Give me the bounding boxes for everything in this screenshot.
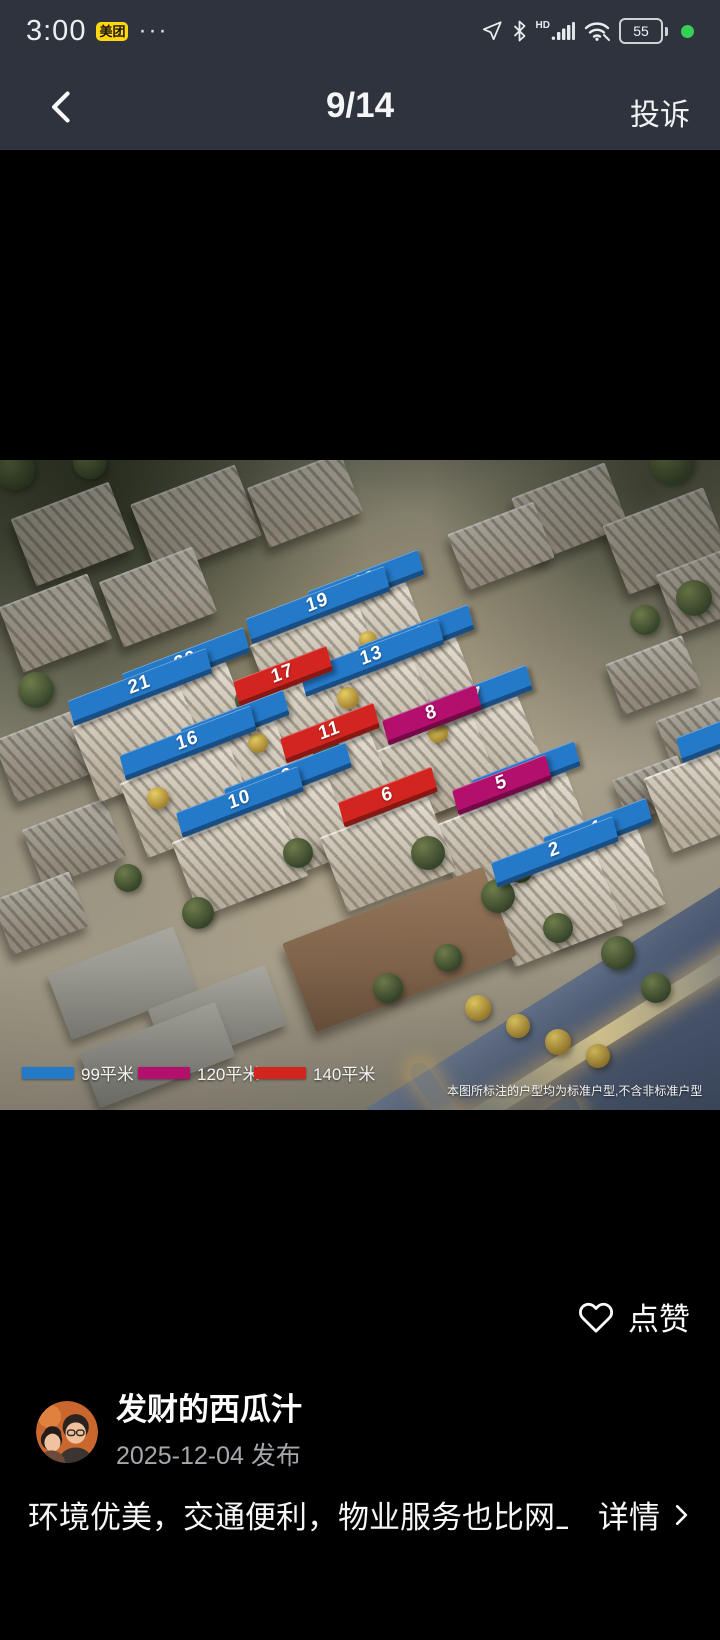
tower-decor	[11, 482, 135, 587]
legend-swatch-magenta	[138, 1067, 190, 1079]
tree-decor	[283, 838, 313, 868]
tree-decor	[650, 460, 694, 484]
tree-decor	[0, 460, 35, 490]
location-icon	[481, 20, 503, 42]
tree-decor	[18, 672, 54, 708]
post-image[interactable]: 181912132017217815111639561012 幼儿园 99平米1…	[0, 460, 720, 1110]
like-label: 点赞	[628, 1294, 690, 1339]
legend-label: 99平米	[81, 1060, 134, 1085]
tree-decor	[73, 460, 107, 479]
tree-decor	[373, 973, 403, 1003]
tree-decor	[630, 605, 660, 635]
wifi-icon	[584, 21, 610, 41]
author-row: 发财的西瓜汁 2025-12-04 发布	[36, 1392, 302, 1472]
tree-decor	[465, 995, 491, 1021]
caption-text: 环境优美，交通便利，物业服务也比网上…	[28, 1492, 568, 1537]
tree-decor	[506, 1014, 530, 1038]
battery-percent: 55	[633, 23, 649, 39]
bluetooth-icon	[512, 20, 527, 42]
tree-decor	[676, 580, 712, 616]
detail-button[interactable]: 详情	[598, 1492, 694, 1537]
chevron-right-icon	[668, 1500, 694, 1530]
tree-decor	[434, 944, 462, 972]
tower-decor	[247, 460, 363, 548]
tower-decor	[0, 871, 90, 955]
tree-decor	[543, 913, 573, 943]
legend-item-blue: 99平米	[22, 1060, 134, 1085]
tree-decor	[114, 864, 142, 892]
like-button[interactable]: 点赞	[577, 1294, 690, 1339]
author-name[interactable]: 发财的西瓜汁	[116, 1392, 302, 1428]
tree-decor	[182, 897, 214, 929]
tower-decor	[0, 573, 112, 672]
tree-decor	[411, 836, 445, 870]
recording-indicator-dot	[681, 25, 694, 38]
tree-decor	[641, 973, 671, 1003]
nav-bar: 9/14 投诉	[0, 62, 720, 150]
meituan-badge: 美团	[96, 22, 128, 41]
legend-swatch-blue	[22, 1067, 74, 1079]
status-bar: 3:00 美团 ··· HD 55	[0, 0, 720, 62]
top-bar: 3:00 美团 ··· HD 55	[0, 0, 720, 150]
legend-item-magenta: 120平米	[138, 1060, 259, 1085]
legend-item-red: 140平米	[254, 1060, 375, 1085]
tower-decor	[99, 546, 217, 647]
tree-decor	[147, 787, 169, 809]
legend-swatch-red	[254, 1067, 306, 1079]
battery-nub	[665, 27, 668, 36]
report-button[interactable]: 投诉	[630, 90, 690, 134]
screen: 3:00 美团 ··· HD 55	[0, 0, 720, 1640]
image-pager: 9/14	[0, 86, 720, 126]
tree-decor	[248, 733, 268, 753]
publish-date: 2025-12-04 发布	[116, 1436, 302, 1472]
tree-decor	[601, 936, 635, 970]
tree-decor	[337, 687, 359, 709]
heart-icon	[577, 1299, 615, 1335]
notification-dots: ···	[138, 26, 168, 36]
detail-label: 详情	[598, 1492, 660, 1537]
cellular-signal-icon: HD	[536, 21, 575, 41]
hd-label: HD	[536, 21, 550, 31]
battery-icon: 55	[619, 18, 668, 44]
tower-decor	[447, 502, 554, 591]
legend-label: 140平米	[313, 1060, 375, 1085]
legend-label: 120平米	[197, 1060, 259, 1085]
tree-decor	[545, 1029, 571, 1055]
clock: 3:00	[26, 15, 86, 48]
tower-decor	[22, 798, 126, 887]
tower-decor	[605, 635, 701, 715]
caption-row: 环境优美，交通便利，物业服务也比网上… 详情	[28, 1492, 694, 1537]
tree-decor	[586, 1044, 610, 1068]
avatar[interactable]	[36, 1401, 98, 1463]
photo-disclaimer: 本图所标注的户型均为标准户型,不含非标准户型	[447, 1082, 709, 1099]
